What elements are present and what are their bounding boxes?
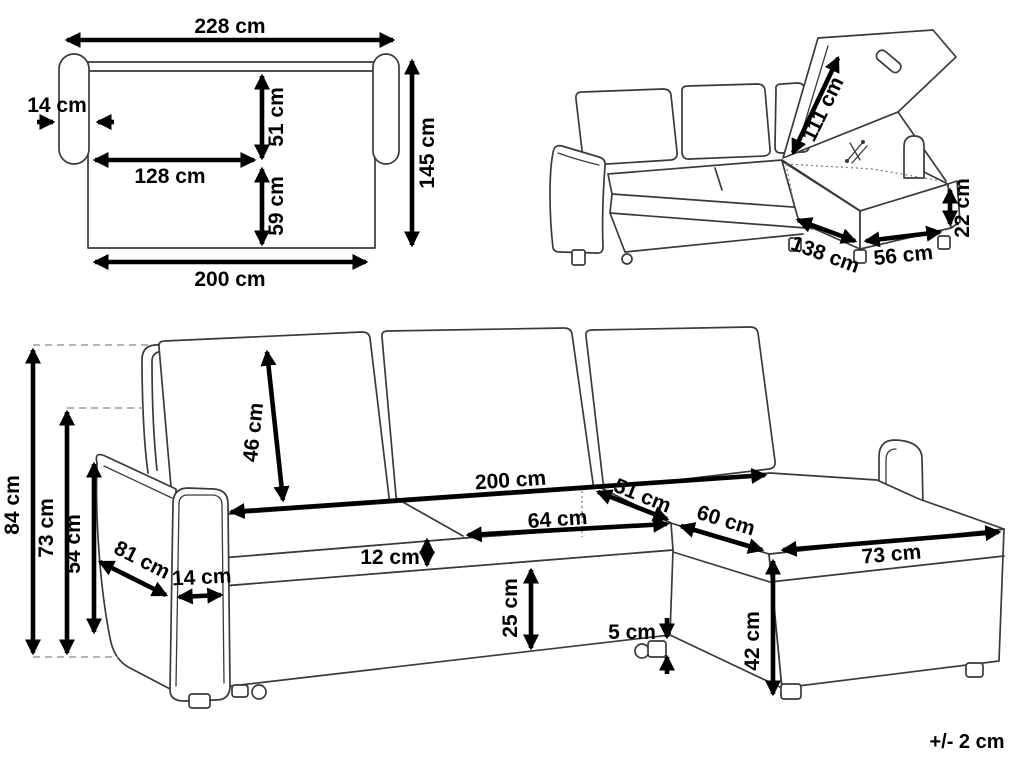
storage-view-drawing <box>550 30 960 265</box>
chaise-mini-armrest <box>904 136 924 178</box>
bed-outline <box>88 62 375 248</box>
dim-label-backrest-height: 73 cm <box>35 498 58 558</box>
dim-label-leg-height: 5 cm <box>608 621 656 644</box>
left-armrest <box>550 146 605 253</box>
dim-label-lying-length: 128 cm <box>134 165 205 188</box>
leg <box>966 663 983 677</box>
sofa-dimension-sheet: 228 cm 14 cm 51 cm 128 cm 59 cm 145 cm 2… <box>0 0 1024 768</box>
right-armrest-capsule <box>373 54 399 164</box>
dim-label-back-depth: 51 cm <box>265 87 288 147</box>
back-cushion-1 <box>576 89 677 165</box>
dim-label-seat-cushion-thickness: 12 cm <box>360 546 420 569</box>
top-view-drawing <box>59 54 399 248</box>
dim-label-total-width: 228 cm <box>194 15 265 38</box>
hinge-joint-2 <box>861 140 865 144</box>
dim-label-armrest-height: 54 cm <box>62 514 85 574</box>
dim-label-storage-height: 22 cm <box>951 178 974 238</box>
dim-label-total-height: 84 cm <box>1 475 24 535</box>
dim-label-total-depth: 145 cm <box>416 117 439 188</box>
leg <box>781 684 801 699</box>
dim-label-seat-depth: 59 cm <box>265 176 288 236</box>
leg <box>232 685 248 697</box>
back-cushion-2 <box>682 84 770 159</box>
dim-label-base-width: 200 cm <box>194 268 265 291</box>
caster-wheel <box>252 685 266 699</box>
dim-label-chaise-base-height: 42 cm <box>741 611 764 671</box>
hinge-levers <box>847 142 867 163</box>
main-view-drawing <box>33 327 1004 708</box>
hinge-joint-1 <box>845 159 849 163</box>
dim-label-storage-width: 56 cm <box>873 241 935 270</box>
lift-hinge-mechanism <box>845 140 867 163</box>
back-cushion-3 <box>586 327 775 488</box>
caster-wheel <box>622 254 632 264</box>
leg <box>938 236 950 249</box>
dim-label-armrest-width: 14 cm <box>171 564 232 590</box>
dim-arrow-armrest-width <box>179 595 221 597</box>
leg <box>189 694 210 708</box>
leg <box>572 250 585 265</box>
dimension-diagram-canvas: 228 cm 14 cm 51 cm 128 cm 59 cm 145 cm 2… <box>0 0 1024 768</box>
dim-label-seat-cushion-width: 64 cm <box>527 506 588 533</box>
caster-wheel <box>635 644 649 658</box>
dim-label-armrest-width: 14 cm <box>27 94 87 117</box>
dim-label-base-height: 25 cm <box>499 578 522 638</box>
tolerance-note: +/- 2 cm <box>929 731 1004 753</box>
